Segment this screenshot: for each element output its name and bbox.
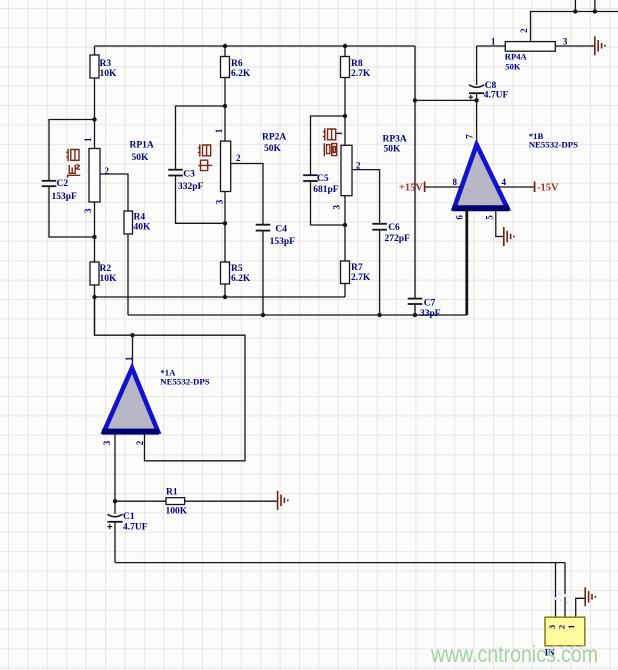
svg-text:R4: R4: [134, 213, 146, 223]
svg-text:33pF: 33pF: [420, 309, 441, 319]
svg-text:2.7K: 2.7K: [351, 273, 371, 283]
svg-text:10K: 10K: [100, 274, 118, 284]
svg-text:153pF: 153pF: [52, 192, 78, 202]
svg-text:C1: C1: [123, 512, 135, 522]
svg-text:6.2K: 6.2K: [231, 274, 251, 284]
svg-text:www.cntronics.com: www.cntronics.com: [430, 641, 598, 667]
svg-text:10K: 10K: [100, 69, 118, 79]
svg-text:6.2K: 6.2K: [231, 69, 251, 79]
svg-text:100K: 100K: [166, 507, 188, 517]
svg-text:153pF: 153pF: [270, 237, 296, 247]
svg-text:NE5532-DPS: NE5532-DPS: [529, 139, 578, 149]
svg-text:50K: 50K: [505, 61, 521, 71]
svg-text:R8: R8: [351, 59, 363, 69]
svg-text:RP2A: RP2A: [262, 132, 286, 142]
svg-text:1: 1: [124, 356, 134, 361]
svg-text:3: 3: [547, 625, 557, 629]
svg-text:C2: C2: [57, 179, 69, 189]
svg-text:C6: C6: [388, 223, 400, 233]
svg-text:2: 2: [135, 440, 145, 445]
svg-text:4: 4: [502, 177, 507, 187]
svg-text:RP3A: RP3A: [383, 134, 407, 144]
svg-text:R5: R5: [231, 264, 243, 274]
svg-text:R3: R3: [100, 59, 112, 69]
svg-text:C3: C3: [183, 169, 195, 179]
svg-text:7: 7: [465, 134, 475, 139]
svg-text:2.7K: 2.7K: [351, 69, 371, 79]
svg-text:C7: C7: [424, 298, 436, 308]
svg-text:R1: R1: [166, 488, 178, 498]
svg-text:2: 2: [556, 625, 566, 629]
svg-text:4.7UF: 4.7UF: [484, 91, 509, 101]
svg-text:R6: R6: [231, 59, 243, 69]
svg-text:8: 8: [453, 177, 458, 187]
svg-text:6: 6: [454, 215, 464, 220]
svg-text:50K: 50K: [132, 153, 150, 163]
svg-text:C4: C4: [275, 224, 287, 234]
svg-text:5: 5: [484, 215, 494, 220]
svg-text:50K: 50K: [264, 144, 282, 154]
svg-text:C5: C5: [317, 174, 329, 184]
svg-text:1: 1: [214, 128, 224, 133]
svg-text:1: 1: [566, 625, 576, 629]
svg-text:1: 1: [491, 36, 496, 46]
svg-text:RP1A: RP1A: [130, 141, 154, 151]
svg-text:40K: 40K: [134, 223, 152, 233]
svg-text:3: 3: [332, 205, 342, 210]
svg-text:-15V: -15V: [537, 183, 559, 194]
svg-text:2: 2: [105, 166, 110, 176]
svg-text:272pF: 272pF: [385, 234, 411, 244]
svg-text:+15V: +15V: [399, 183, 423, 194]
svg-text:681pF: 681pF: [313, 185, 339, 195]
svg-text:NE5532-DPS: NE5532-DPS: [160, 377, 209, 387]
svg-text:3: 3: [215, 199, 225, 204]
svg-text:4.7UF: 4.7UF: [123, 522, 148, 532]
svg-text:2: 2: [519, 28, 529, 33]
svg-text:3: 3: [102, 440, 112, 445]
svg-text:2: 2: [356, 160, 361, 170]
svg-text:3: 3: [83, 208, 93, 213]
svg-text:3: 3: [563, 37, 568, 47]
svg-text:50K: 50K: [384, 145, 402, 155]
svg-text:332pF: 332pF: [178, 182, 204, 192]
svg-text:RP4A: RP4A: [505, 52, 528, 62]
svg-text:2: 2: [236, 153, 241, 163]
svg-text:R2: R2: [100, 264, 112, 274]
svg-text:R7: R7: [351, 263, 363, 273]
svg-text:1: 1: [83, 137, 93, 142]
